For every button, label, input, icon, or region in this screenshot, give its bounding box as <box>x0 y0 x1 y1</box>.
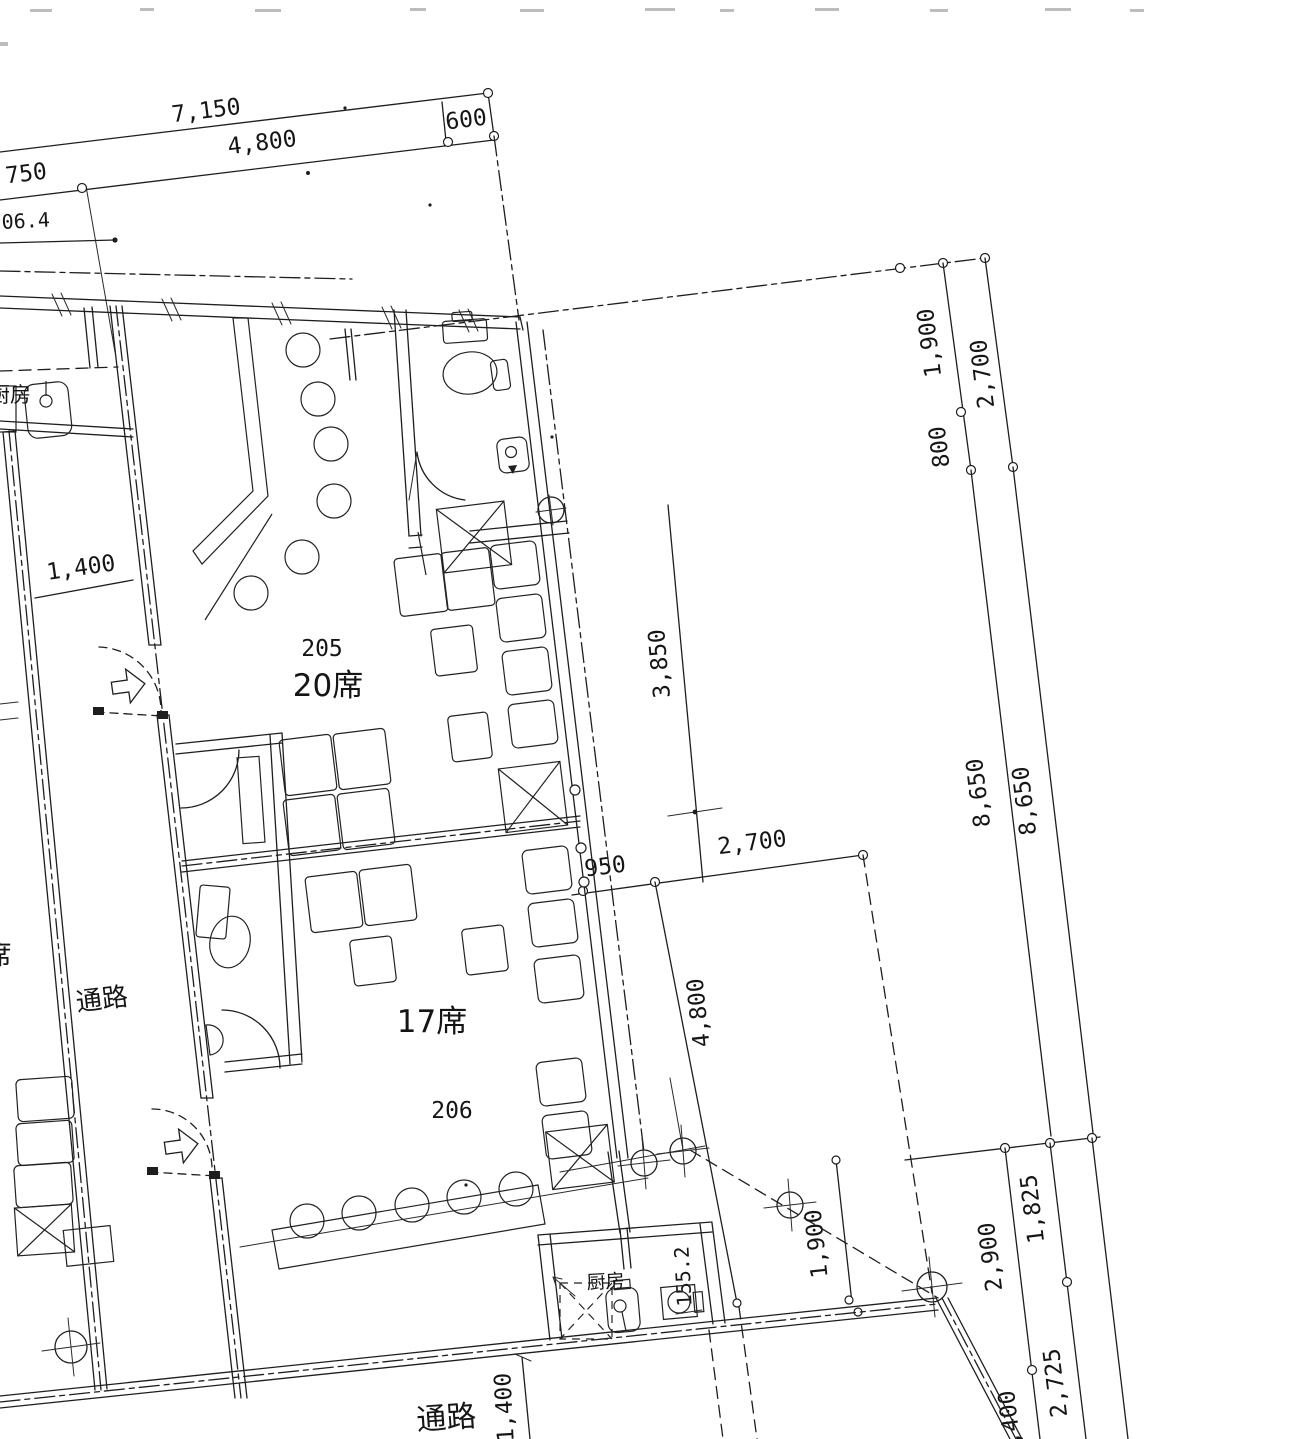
kitchen-bottom-label: 厨房 <box>586 1270 625 1294</box>
bench-seat <box>535 1057 586 1106</box>
dim-right-800: 800 <box>925 425 956 469</box>
corridor-bottom-label: 通路 <box>415 1399 477 1438</box>
door-arc-restroom-lower-top <box>181 750 239 808</box>
table <box>461 925 508 976</box>
table <box>430 625 477 677</box>
shelf <box>237 756 265 843</box>
east-wall <box>516 322 683 1233</box>
dim-right-1900: 1,900 <box>913 307 947 379</box>
table <box>305 871 363 933</box>
scan-noise <box>0 8 1144 1187</box>
bench-seat <box>533 954 584 1003</box>
dim-2900: 2,900 <box>974 1221 1008 1293</box>
x-box <box>546 1124 615 1189</box>
kitchen-left-label: 厨房 <box>0 383 31 407</box>
dim-8650-outer: 8,650 <box>1008 765 1042 837</box>
floor-plan-scan: 7,150 4,800 600 750 06.4 1,900 2,700 800… <box>0 0 1310 1439</box>
bench-seat <box>501 646 552 695</box>
dim-1400-bottom: 1,400 <box>490 1372 520 1439</box>
corridor-left-label: 通路 <box>74 982 129 1018</box>
dim-left-group: 1,400 1,400 155.2 <box>35 550 702 1439</box>
stool <box>301 382 335 416</box>
dim-8650-inner: 8,650 <box>962 757 996 829</box>
dim-middle-group: 3,850 950 2,700 4,800 1,900 <box>572 505 932 1439</box>
dim-right-main-group: 8,650 8,650 <box>962 467 1093 1136</box>
stool <box>395 1188 429 1222</box>
room205-seats: 20席 <box>293 668 363 704</box>
dim-top-left: 750 <box>4 159 48 190</box>
dim-4800-mid: 4,800 <box>682 977 715 1049</box>
stool <box>286 333 320 367</box>
stool <box>285 540 319 574</box>
booth-seats-left <box>0 702 114 1266</box>
dim-1400-left: 1,400 <box>45 550 117 585</box>
stool <box>290 1204 324 1238</box>
seats-partial-label: 席 <box>0 940 12 971</box>
basin-upper <box>496 436 530 474</box>
table <box>333 728 391 790</box>
column-icon <box>657 1125 709 1177</box>
kitchen-left: 厨房 <box>0 367 133 439</box>
kitchen-bottom: 厨房 <box>538 1222 725 1340</box>
dim-1825: 1,825 <box>1016 1173 1050 1245</box>
dim-top-partial: 06.4 <box>1 208 50 234</box>
bottom-counter <box>272 1185 545 1269</box>
bench-seat <box>527 898 578 947</box>
bench-seat <box>521 845 572 894</box>
faucet-icon <box>40 395 52 407</box>
x-box <box>436 501 511 573</box>
corner-basin <box>206 1025 223 1055</box>
entry-arrow-icon <box>110 667 147 705</box>
toilet-lower <box>196 885 255 972</box>
bench-seat <box>507 699 558 748</box>
table <box>447 712 492 763</box>
corridor-west-wall <box>110 306 247 1398</box>
service-counter <box>193 318 268 564</box>
entry-arrow-icon <box>163 1127 200 1165</box>
dim-topright-group: 1,900 2,700 800 <box>896 254 1018 475</box>
stool <box>314 427 348 461</box>
dim-top-right: 600 <box>444 105 488 136</box>
stool <box>317 484 351 518</box>
bench-seat <box>489 540 540 589</box>
dim-155-2: 155.2 <box>669 1246 696 1307</box>
table <box>394 553 449 616</box>
dim-2725: 2,725 <box>1039 1347 1073 1419</box>
room206-seats: 17席 <box>397 1004 467 1040</box>
dim-2700-mid: 2,700 <box>716 826 788 860</box>
stool <box>234 576 268 610</box>
dim-top-total: 7,150 <box>170 94 242 128</box>
door-arc-restroom-upper <box>417 452 465 500</box>
dim-right-2700: 2,700 <box>966 338 1000 410</box>
faucet-icon <box>614 1300 626 1312</box>
dim-3850: 3,850 <box>644 628 676 699</box>
restroom-upper <box>394 310 569 548</box>
bench-seat <box>495 593 546 642</box>
dim-950: 950 <box>583 852 627 883</box>
dim-top-group: 7,150 4,800 600 750 06.4 <box>0 89 985 353</box>
restroom-lower <box>176 733 302 1072</box>
dim-top-main: 4,800 <box>226 126 298 160</box>
room205-number: 205 <box>301 636 343 662</box>
table <box>359 864 417 926</box>
table <box>279 734 337 796</box>
room205-furniture <box>193 318 568 856</box>
room206-number: 206 <box>431 1098 473 1124</box>
table <box>441 547 496 610</box>
table <box>349 936 396 987</box>
